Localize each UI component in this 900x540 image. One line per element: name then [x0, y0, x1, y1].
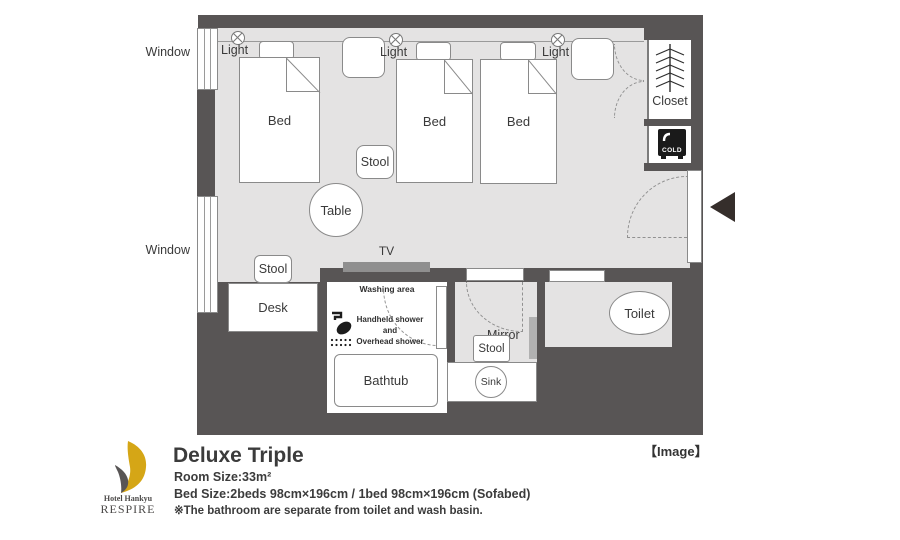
stool-washbasin: Stool — [473, 335, 510, 362]
bathtub-label: Bathtub — [364, 373, 409, 388]
hangers-icon — [654, 43, 686, 93]
shower-caption: Handheld shower and Overhead shower — [348, 314, 432, 348]
wall-bottom-right-block — [537, 347, 703, 435]
stool-center-label: Stool — [361, 155, 390, 169]
washbasin-door-leaf — [466, 268, 524, 281]
bed-3-label: Bed — [507, 114, 530, 129]
image-tag: 【Image】 — [644, 441, 708, 460]
wall-top — [198, 15, 703, 28]
bed-3: Bed — [480, 59, 557, 184]
tv-icon — [343, 262, 430, 272]
hotel-logo-brand: RESPIRE — [88, 502, 168, 517]
blanket-fold — [528, 60, 556, 94]
entrance-arrow-icon — [710, 192, 735, 222]
wall-washing-left — [320, 268, 327, 435]
window-top — [197, 28, 218, 90]
sink-label: Sink — [481, 376, 501, 388]
shower-caption-line1: Handheld shower — [348, 314, 432, 325]
wall-left-mid — [197, 88, 215, 196]
toilet-label: Toilet — [624, 306, 654, 321]
round-table: Table — [309, 183, 363, 237]
closet-label: Closet — [652, 94, 687, 108]
desk-label: Desk — [258, 300, 288, 315]
closet: Closet — [647, 40, 691, 119]
room-size-text: Room Size:33m² — [174, 470, 271, 484]
window-bottom — [197, 196, 218, 313]
hotel-logo — [107, 441, 149, 493]
entrance-door-leaf — [687, 170, 702, 263]
stool-desk: Stool — [254, 255, 292, 283]
bed-2: Bed — [396, 59, 473, 183]
light-label-1: Light — [221, 43, 248, 57]
wall-right-of-toilet — [672, 282, 690, 347]
wall-closet-separator — [644, 119, 703, 126]
light-label-2: Light — [380, 45, 407, 59]
bed-2-label: Bed — [423, 114, 446, 129]
entrance-door-swing-line — [627, 237, 687, 238]
bed-1: Bed — [239, 57, 320, 183]
window-pane-line — [210, 29, 211, 89]
table-label: Table — [320, 203, 351, 218]
window-pane-line — [204, 29, 205, 89]
bathroom-note-text: ※The bathroom are separate from toilet a… — [174, 503, 483, 517]
floor-plan-canvas: Window Window Closet COLD B — [0, 0, 900, 540]
window-pane-line — [210, 197, 211, 312]
window-pane-line — [204, 197, 205, 312]
window-top-label: Window — [128, 45, 190, 59]
fridge-label: COLD — [658, 147, 686, 154]
stool-washbasin-label: Stool — [478, 343, 504, 355]
nightstand — [342, 37, 385, 78]
stool-center: Stool — [356, 145, 394, 179]
tv-label: TV — [343, 244, 430, 258]
bed-size-text: Bed Size:2beds 98cm×196cm / 1bed 98cm×19… — [174, 487, 530, 501]
light-label-3: Light — [542, 45, 569, 59]
nightstand — [571, 38, 614, 80]
blanket-fold-line — [444, 60, 473, 95]
bed-1-label: Bed — [268, 113, 291, 128]
fridge-foot — [678, 156, 683, 159]
blanket-fold — [286, 58, 319, 92]
toilet-door-leaf — [549, 270, 605, 282]
room-type-title: Deluxe Triple — [173, 444, 304, 468]
stool-desk-label: Stool — [259, 262, 288, 276]
mirror-icon — [529, 317, 537, 359]
shower-caption-line3: Overhead shower — [348, 336, 432, 347]
blanket-fold-line — [286, 58, 320, 93]
toilet: Toilet — [609, 291, 670, 335]
mini-fridge-box: COLD — [647, 126, 691, 163]
wall-under-washing — [327, 413, 447, 435]
window-bottom-label: Window — [128, 243, 190, 257]
blanket-fold — [444, 60, 472, 94]
washbasin-door-swing-line — [522, 282, 523, 332]
blanket-fold-line — [528, 60, 557, 95]
shower-caption-line2: and — [348, 325, 432, 336]
washing-door-leaf — [436, 286, 447, 349]
desk: Desk — [228, 283, 318, 332]
bathtub: Bathtub — [334, 354, 438, 407]
wall-under-counter — [447, 402, 545, 435]
fridge-foot — [661, 156, 666, 159]
fridge-handle-icon — [661, 131, 673, 143]
sink: Sink — [475, 366, 507, 398]
fridge-icon: COLD — [658, 129, 686, 156]
